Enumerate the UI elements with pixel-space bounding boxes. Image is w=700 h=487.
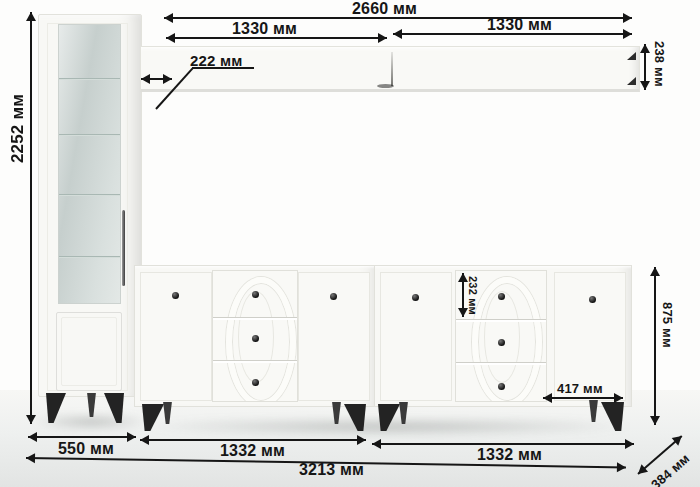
drawer-knob	[498, 383, 505, 390]
sideboard-left	[134, 265, 376, 407]
dim-drawer-height-arrow	[462, 273, 464, 317]
dim-total-width-label: 3213 мм	[299, 461, 364, 479]
dim-cabinet-height-label: 2252 мм	[8, 94, 28, 163]
cabinet-handle	[122, 210, 125, 286]
dim-sideboard-left-width-arrow	[140, 439, 366, 441]
drawer-knob	[252, 379, 259, 386]
glass-shelf	[59, 194, 120, 196]
dim-sideboard-right-width-arrow	[372, 443, 634, 445]
dim-sideboard-left-width-label: 1332 мм	[220, 442, 285, 460]
shelf-middle-bracket	[377, 84, 394, 88]
cabinet-lower-panel	[56, 312, 122, 391]
dim-shelf-height-arrow	[644, 44, 646, 90]
dim-sideboard-right-width-label: 1332 мм	[477, 446, 542, 464]
dim-shelf-height-label: 238 мм	[652, 41, 667, 87]
glass-shelf	[59, 256, 120, 258]
dim-drawer-height-label: 232 мм	[467, 276, 479, 315]
drawer-divider	[456, 362, 546, 365]
dim-shelf-total-label: 2660 мм	[352, 0, 417, 18]
glass-shelf	[59, 134, 120, 136]
cabinet-panel-molding	[61, 317, 117, 386]
drawer-knob	[498, 293, 505, 300]
drawer-stack	[212, 270, 298, 402]
glass-shelf	[59, 78, 120, 80]
drawer-divider	[456, 319, 546, 322]
shelf-seam	[391, 52, 393, 86]
sideboard-door	[140, 272, 212, 401]
dim-shelf-left-label: 1330 мм	[232, 20, 297, 38]
cabinet-glass-door	[58, 24, 121, 304]
drawer-knob	[252, 335, 259, 342]
dim-cabinet-width-label: 550 мм	[58, 440, 114, 458]
dim-door-width-arrow	[543, 397, 623, 399]
sideboard-door	[380, 272, 452, 401]
door-knob	[412, 294, 419, 301]
door-knob	[172, 292, 179, 299]
dim-sideboard-height-arrow	[654, 267, 656, 425]
door-knob	[330, 293, 337, 300]
drawer-knob	[252, 291, 259, 298]
oval-molding-inner	[484, 291, 520, 383]
drawer-divider	[213, 360, 297, 363]
dim-door-width-label: 417 мм	[557, 381, 603, 396]
sideboard-door	[298, 272, 370, 401]
dim-shelf-depth-label: 222 мм	[190, 52, 243, 69]
furniture-dimension-diagram: 2660 мм 1330 мм 1330 мм 238 мм 222 мм 22…	[0, 0, 700, 487]
dim-sideboard-height-label: 875 мм	[660, 302, 675, 348]
dim-cabinet-width-arrow	[28, 436, 136, 438]
dim-shelf-right-label: 1330 мм	[487, 16, 552, 34]
drawer-divider	[213, 317, 297, 320]
dim-shelf-depth-arrow	[141, 78, 172, 80]
drawer-knob	[498, 339, 505, 346]
door-knob	[589, 296, 596, 303]
dim-cabinet-height-arrow	[30, 12, 32, 424]
